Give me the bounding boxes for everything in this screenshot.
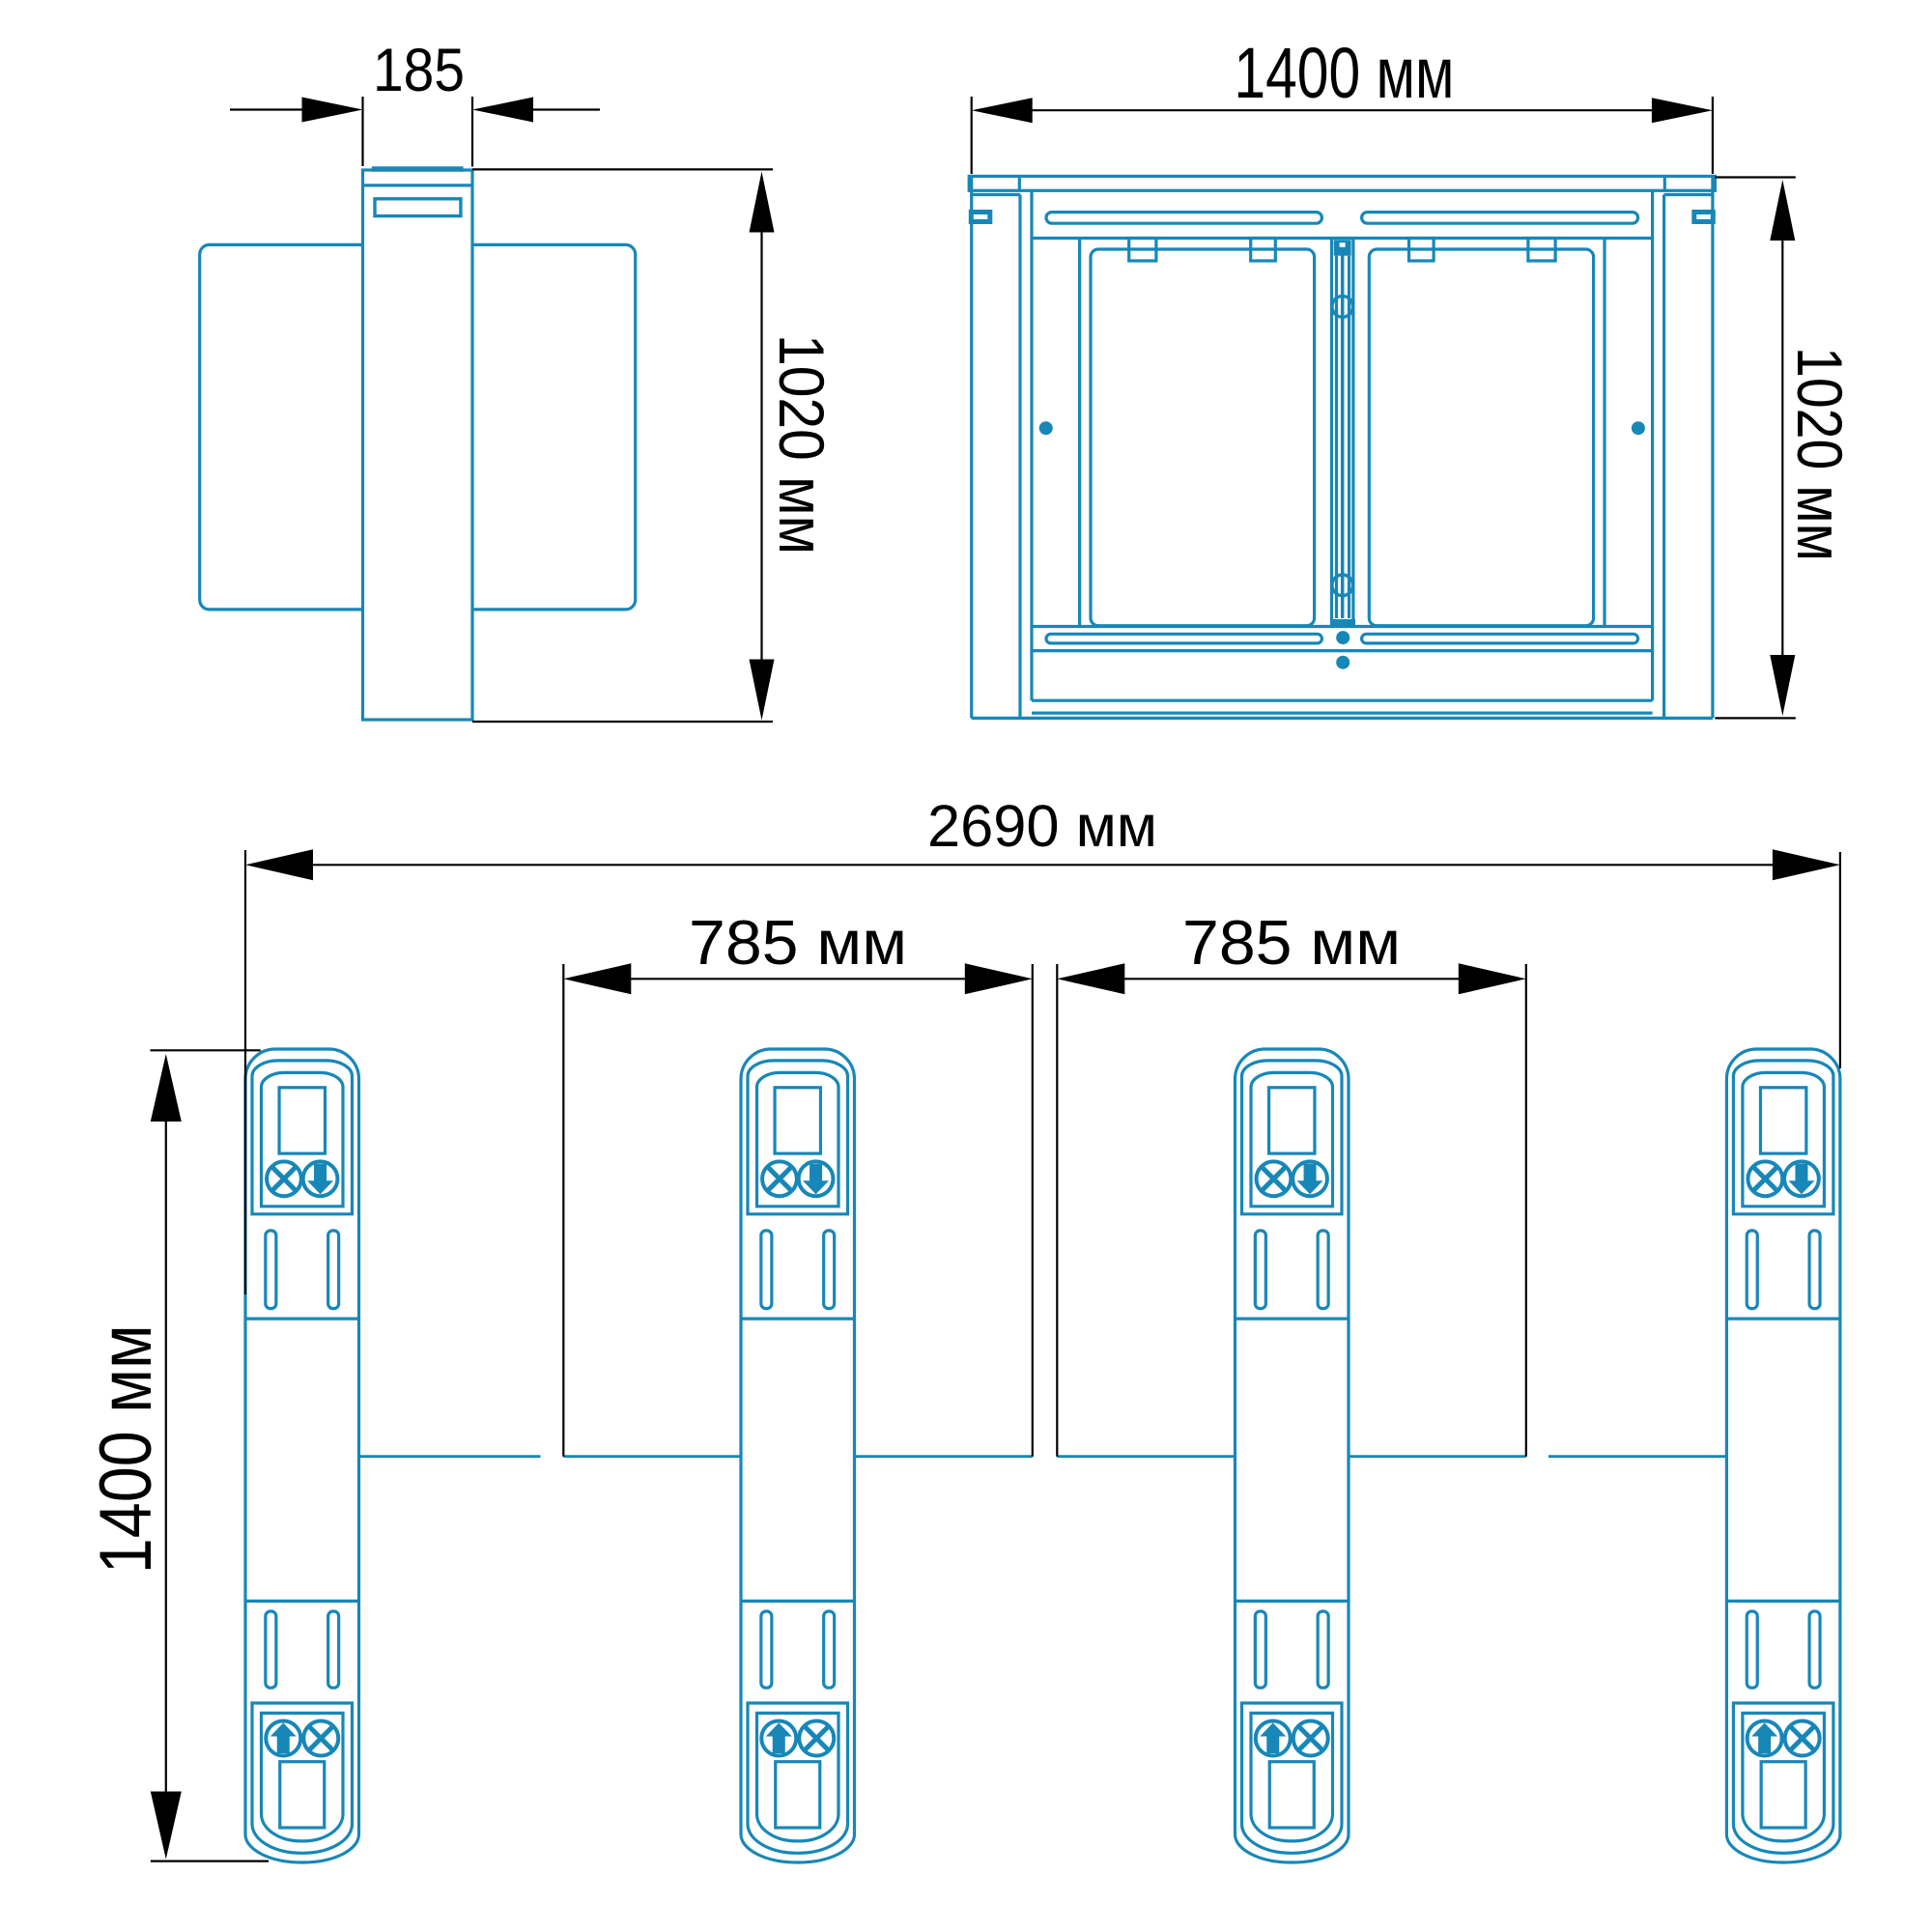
svg-text:2690 мм: 2690 мм <box>927 793 1157 859</box>
svg-text:1020 мм: 1020 мм <box>766 334 838 554</box>
svg-text:185: 185 <box>373 37 465 104</box>
svg-text:1020 мм: 1020 мм <box>1784 347 1856 561</box>
svg-text:1400 мм: 1400 мм <box>85 1324 167 1574</box>
svg-text:1400 мм: 1400 мм <box>1234 33 1454 113</box>
svg-text:785 мм: 785 мм <box>689 907 907 978</box>
svg-text:785 мм: 785 мм <box>1182 907 1401 978</box>
